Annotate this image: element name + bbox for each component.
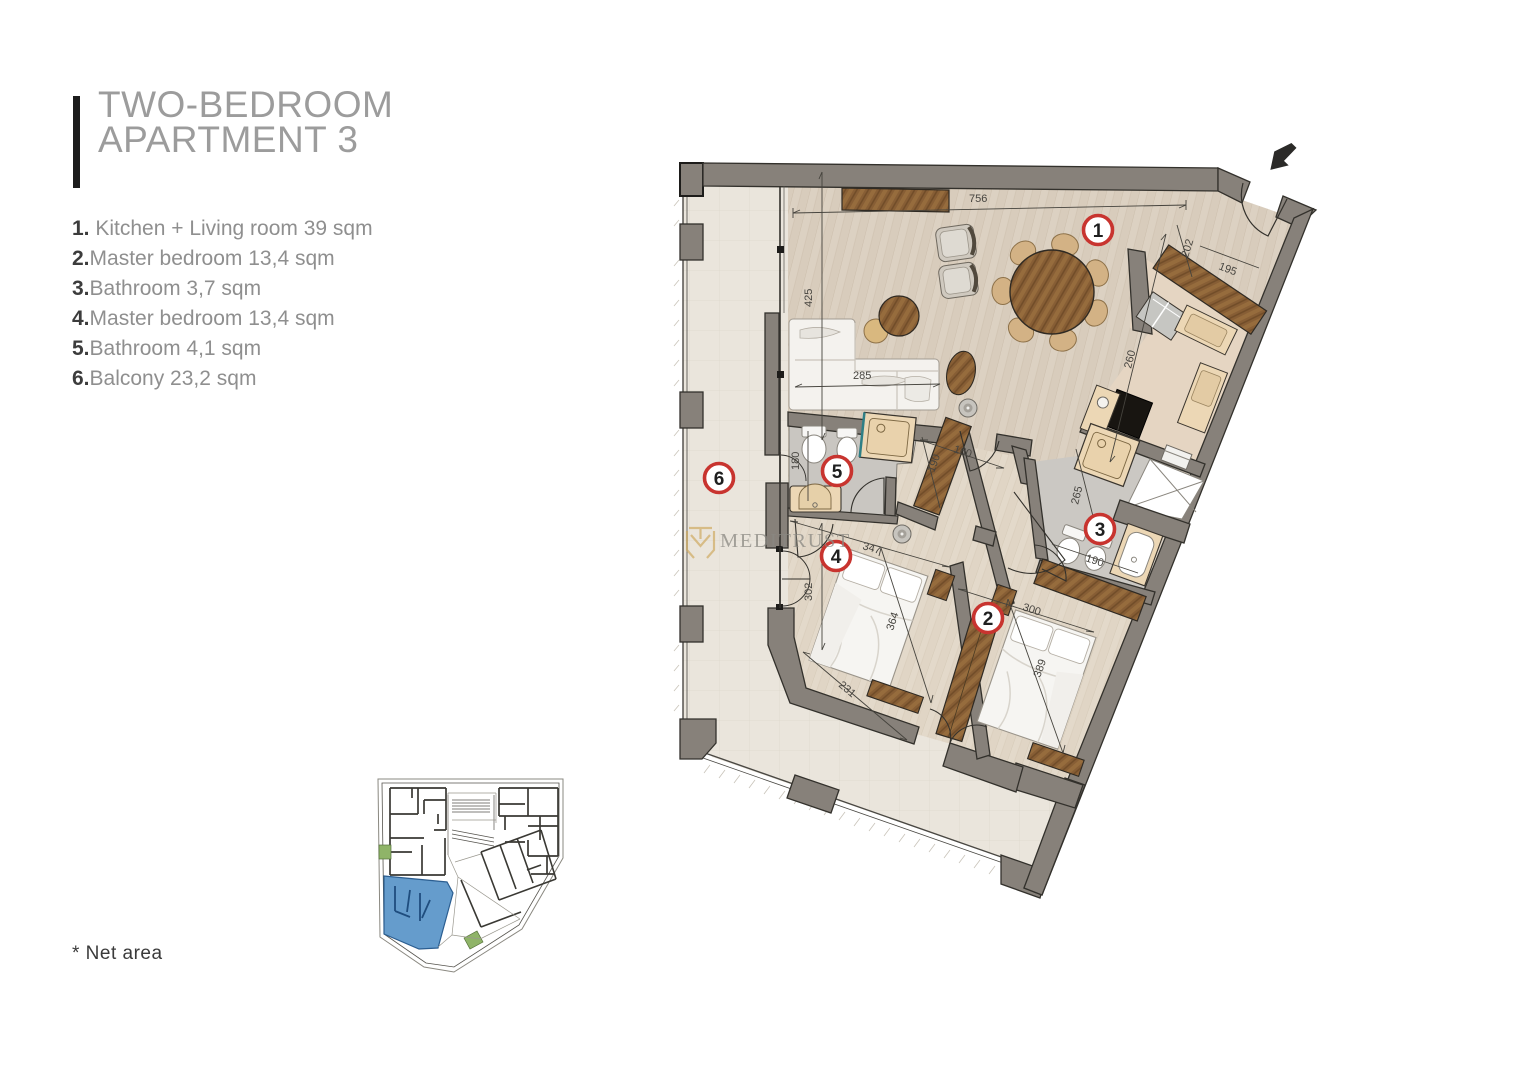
svg-text:6: 6 (714, 469, 725, 490)
svg-text:756: 756 (969, 193, 987, 205)
svg-text:3: 3 (1095, 520, 1106, 541)
svg-text:2: 2 (983, 609, 994, 630)
svg-text:302: 302 (803, 583, 815, 601)
svg-text:1: 1 (1093, 221, 1104, 242)
svg-text:180: 180 (790, 452, 802, 470)
svg-text:425: 425 (803, 289, 815, 307)
svg-text:285: 285 (853, 370, 871, 382)
svg-text:5: 5 (832, 462, 843, 483)
svg-text:MEDITRUST: MEDITRUST (720, 530, 851, 552)
